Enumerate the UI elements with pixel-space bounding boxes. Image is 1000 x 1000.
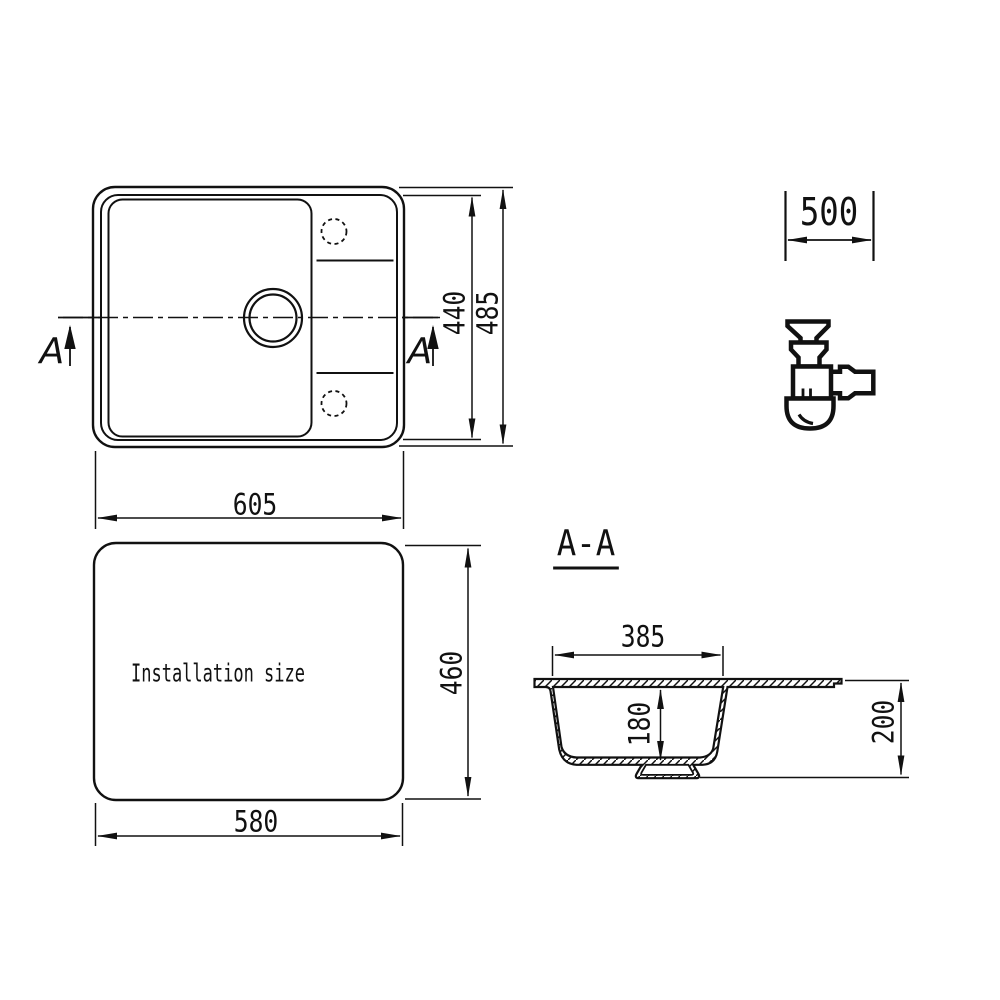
dim-385-label: 385	[621, 623, 666, 652]
siphon-icon	[787, 322, 874, 429]
drain-outlet	[641, 765, 693, 775]
dim-200-label: 200	[870, 700, 899, 745]
section-label-right: A	[408, 334, 433, 370]
siphon-neck	[791, 343, 827, 367]
section-view	[535, 646, 910, 778]
tap-hole-top	[322, 219, 347, 244]
installation-view	[94, 543, 481, 846]
top-view	[58, 187, 513, 529]
siphon-funnel	[788, 322, 829, 343]
dim-180-label: 180	[626, 702, 655, 747]
drawing-canvas	[0, 0, 1000, 1000]
installation-caption: Installation size	[131, 661, 305, 686]
siphon-body	[793, 367, 831, 399]
section-label-left: A	[40, 334, 65, 370]
section-title: A-A	[553, 527, 619, 570]
dim-485-label: 485	[474, 291, 503, 336]
dim-605-label: 605	[233, 491, 278, 520]
tap-hole-bottom	[322, 391, 347, 416]
dim-580-label: 580	[234, 808, 279, 837]
siphon-outlet	[830, 367, 873, 399]
section-material	[535, 679, 842, 778]
dim-500-label: 500	[800, 193, 858, 231]
dim-440-label: 440	[441, 291, 470, 336]
technical-drawing-page: 605 440 485 A A Installation size 580 46…	[0, 0, 1000, 1000]
dim-460-label: 460	[438, 651, 467, 696]
